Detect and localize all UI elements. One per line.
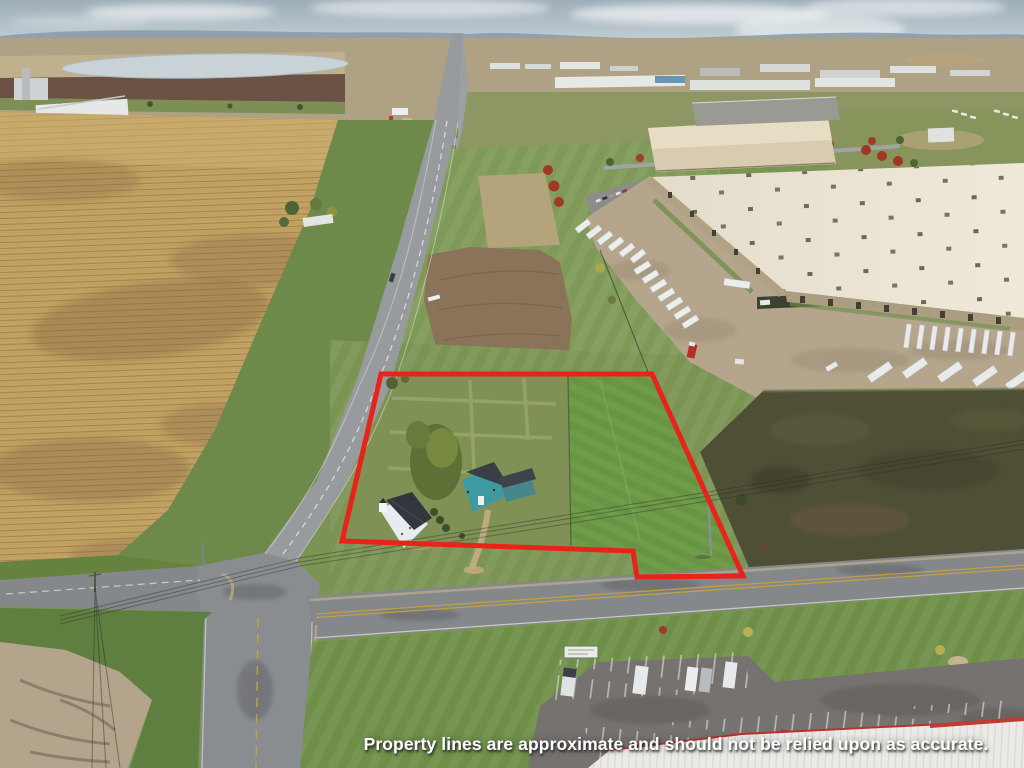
aerial-photo: Property lines are approximate and shoul… <box>0 0 1024 768</box>
white-truck <box>760 300 770 306</box>
stall-lines-row1 <box>552 652 750 700</box>
landscape-sign <box>564 646 598 658</box>
disclaimer-text: Property lines are approximate and shoul… <box>330 734 1022 755</box>
white-small-building <box>928 128 954 143</box>
scrub-field <box>700 389 1024 570</box>
white-pickup <box>735 359 744 365</box>
aerial-photo-canvas <box>0 0 1024 768</box>
